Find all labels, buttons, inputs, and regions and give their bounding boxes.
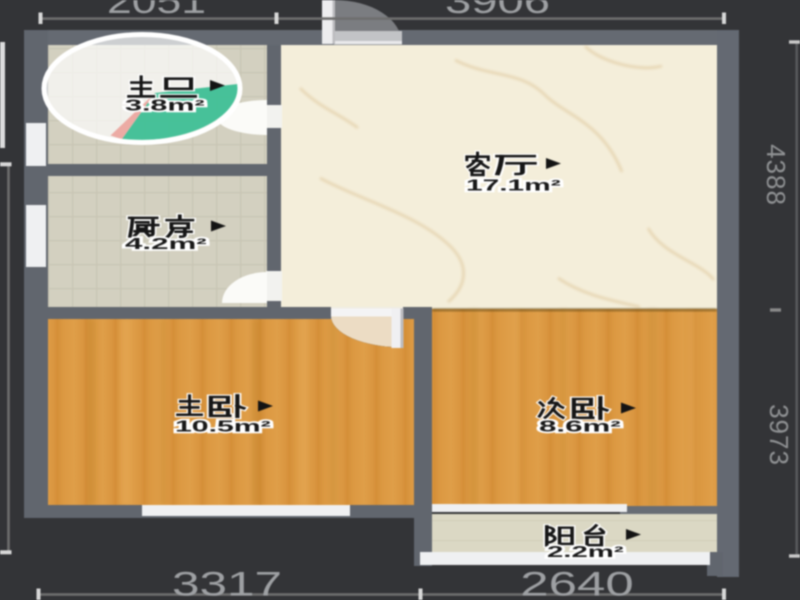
svg-text:2640: 2640	[520, 566, 633, 600]
svg-text:2051: 2051	[107, 0, 206, 21]
svg-text:4.2m²: 4.2m²	[125, 236, 207, 253]
svg-text:3973: 3973	[764, 404, 794, 466]
svg-text:10.5m²: 10.5m²	[175, 418, 271, 435]
svg-text:17.1m²: 17.1m²	[466, 177, 561, 195]
svg-text:2.2m²: 2.2m²	[547, 543, 624, 560]
svg-text:8.6m²: 8.6m²	[539, 418, 621, 435]
svg-text:3.8m²: 3.8m²	[125, 97, 205, 114]
svg-text:4388: 4388	[761, 144, 791, 206]
svg-text:3317: 3317	[172, 565, 282, 600]
svg-text:3906: 3906	[445, 0, 550, 20]
